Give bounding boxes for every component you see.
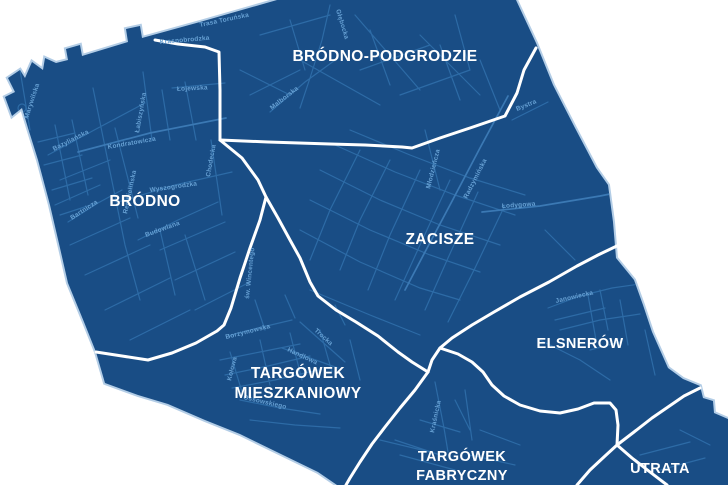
neighborhood-label-targowek-mieszkaniowy-line1[interactable]: TARGÓWEK [251,364,346,382]
neighborhood-label-zacisze[interactable]: ZACISZE [405,231,474,248]
neighborhood-label-brodno-podgrodzie[interactable]: BRÓDNO-PODGRODZIE [292,47,477,65]
neighborhood-label-targowek-fabryczny-line2[interactable]: FABRYCZNY [416,468,508,484]
neighborhood-label-utrata[interactable]: UTRATA [630,461,690,477]
district-map: Trasa Toruńska Krasnobrodzka Łojewska Gł… [0,0,728,485]
district-outline [5,0,728,485]
neighborhood-label-brodno[interactable]: BRÓDNO [109,192,180,210]
neighborhood-label-targowek-mieszkaniowy-line2[interactable]: MIESZKANIOWY [234,385,361,402]
neighborhood-label-elsnerow[interactable]: ELSNERÓW [537,334,624,352]
neighborhood-label-targowek-fabryczny-line1[interactable]: TARGÓWEK [418,447,506,465]
map-canvas: Trasa Toruńska Krasnobrodzka Łojewska Gł… [0,0,728,485]
